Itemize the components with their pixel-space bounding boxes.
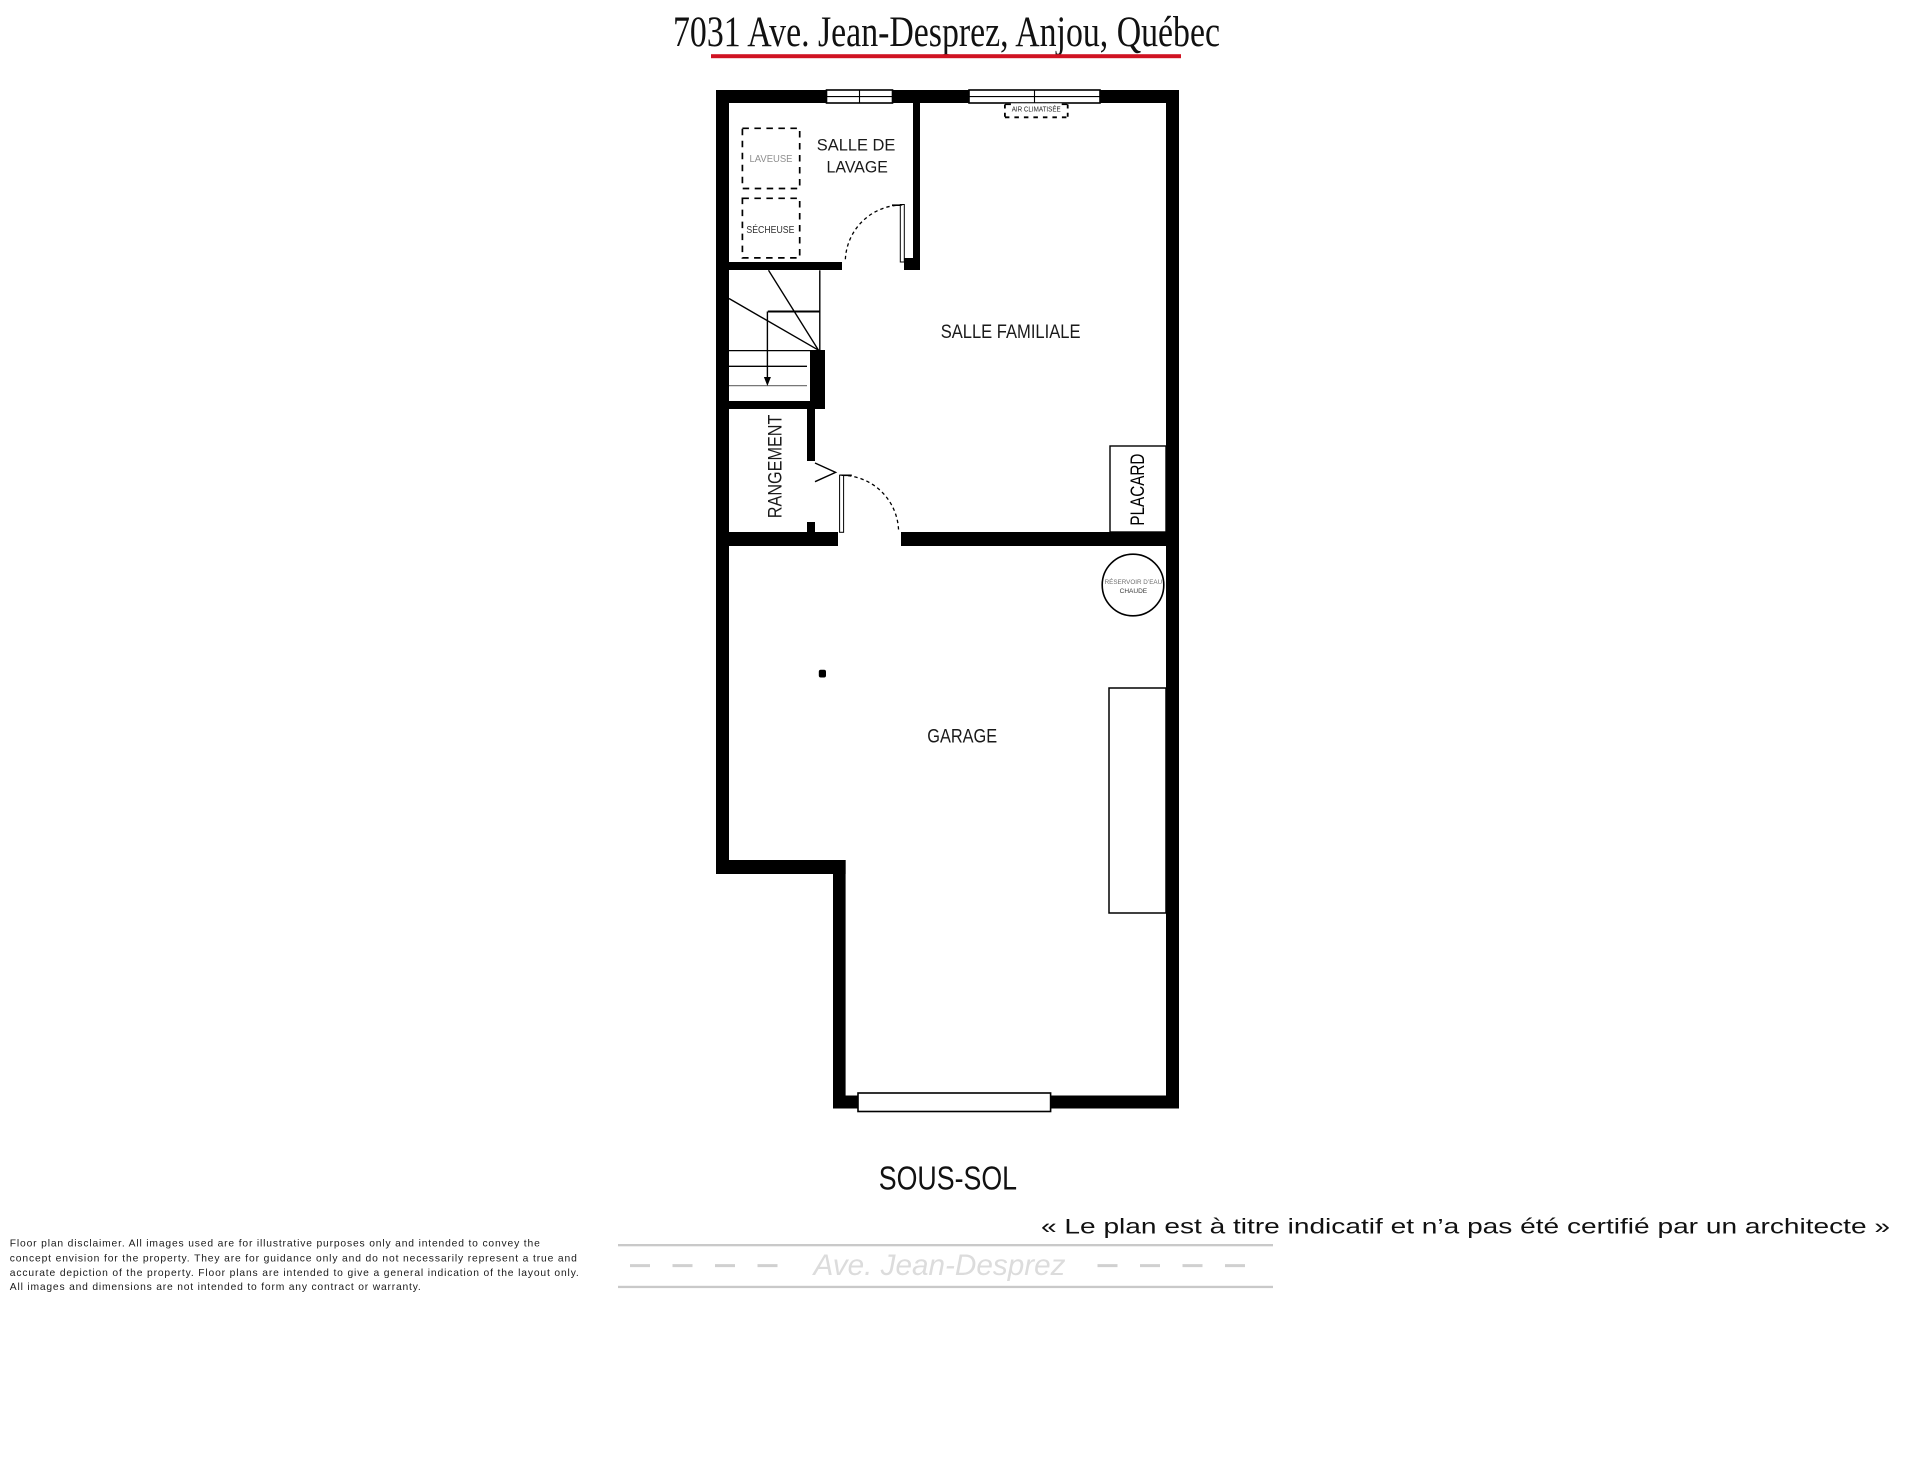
svg-text:LAVEUSE: LAVEUSE xyxy=(750,154,793,165)
svg-text:GARAGE: GARAGE xyxy=(927,727,997,748)
svg-text:7031 Ave. Jean-Desprez, Anjou,: 7031 Ave. Jean-Desprez, Anjou, Québec xyxy=(673,9,1220,56)
svg-text:concept envision for the prope: concept envision for the property. They … xyxy=(10,1253,577,1264)
svg-text:RANGEMENT: RANGEMENT xyxy=(764,415,786,519)
svg-text:SALLE DE: SALLE DE xyxy=(817,137,896,155)
svg-text:accurate depiction of the prop: accurate depiction of the property. Floo… xyxy=(10,1268,579,1279)
svg-text:PLACARD: PLACARD xyxy=(1127,454,1149,526)
svg-text:CHAUDE: CHAUDE xyxy=(1120,588,1148,595)
svg-text:SALLE FAMILIALE: SALLE FAMILIALE xyxy=(941,322,1081,343)
svg-text:Floor plan disclaimer. All ima: Floor plan disclaimer. All images used a… xyxy=(10,1238,540,1249)
svg-text:RÉSERVOIR D’EAU: RÉSERVOIR D’EAU xyxy=(1105,579,1163,586)
svg-text:LAVAGE: LAVAGE xyxy=(827,159,888,177)
svg-text:Ave. Jean-Desprez: Ave. Jean-Desprez xyxy=(811,1249,1065,1282)
svg-text:All images and dimensions are: All images and dimensions are not intend… xyxy=(10,1282,421,1293)
svg-text:« Le plan est à titre indicati: « Le plan est à titre indicatif et n’a p… xyxy=(1041,1215,1890,1239)
svg-text:SOUS-SOL: SOUS-SOL xyxy=(879,1159,1017,1196)
svg-text:SÉCHEUSE: SÉCHEUSE xyxy=(746,223,794,236)
svg-text:AIR CLIMATISÉE: AIR CLIMATISÉE xyxy=(1012,105,1061,114)
